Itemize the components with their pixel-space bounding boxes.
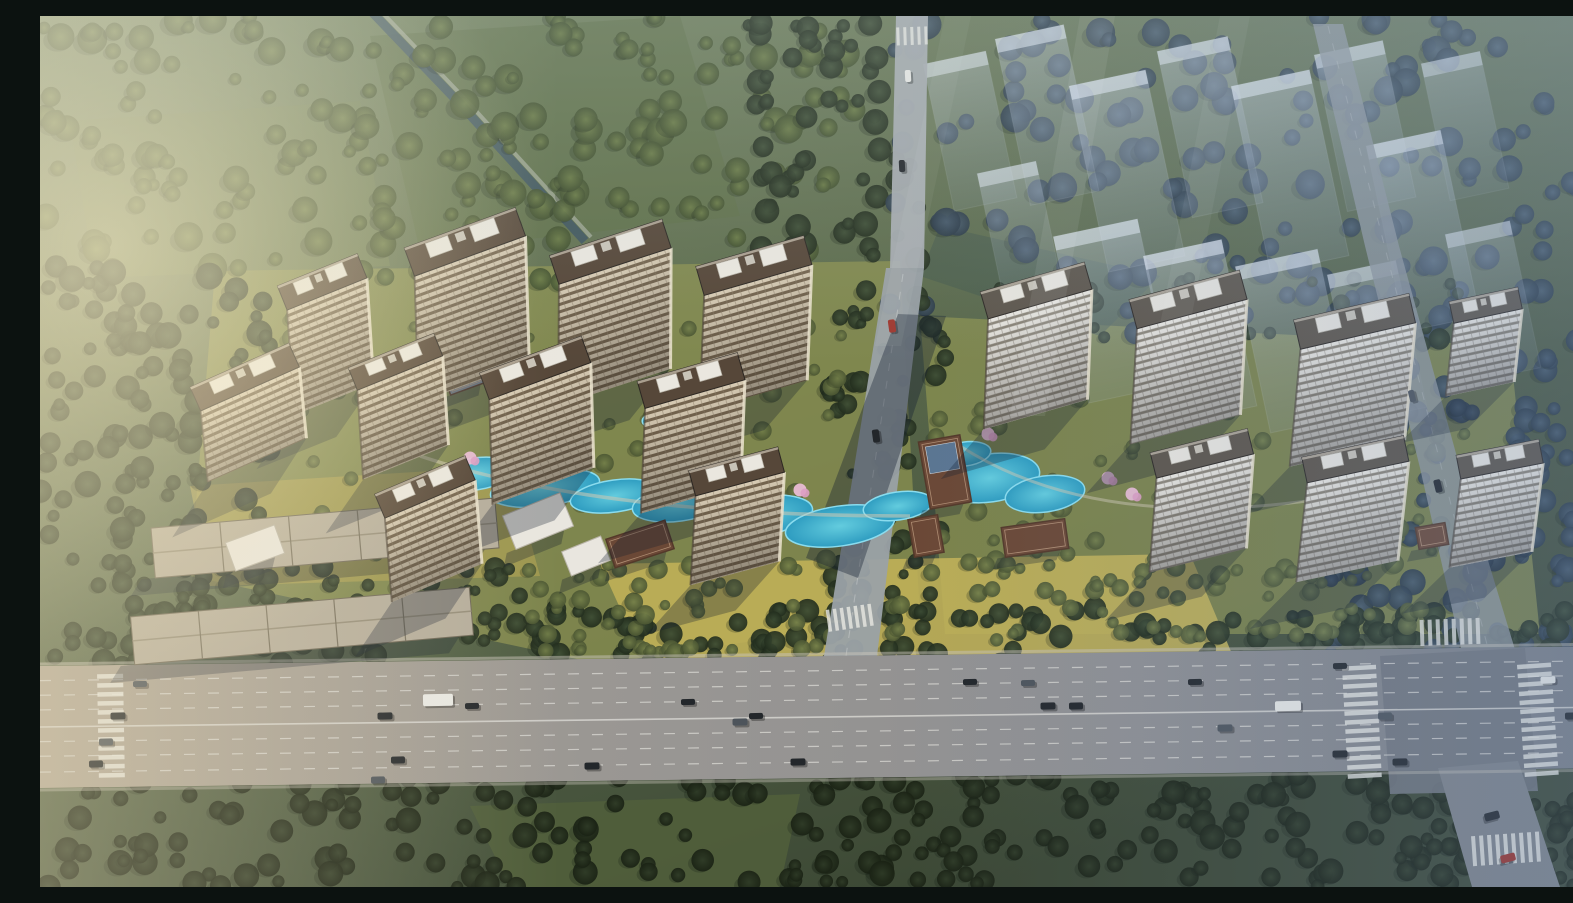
top-haze-overlay bbox=[40, 16, 1573, 887]
aerial-site-rendering bbox=[40, 16, 1573, 887]
aerial-rendering-figure bbox=[40, 16, 1573, 887]
scene-layers bbox=[40, 16, 1573, 887]
atmosphere-layer bbox=[40, 16, 1573, 887]
